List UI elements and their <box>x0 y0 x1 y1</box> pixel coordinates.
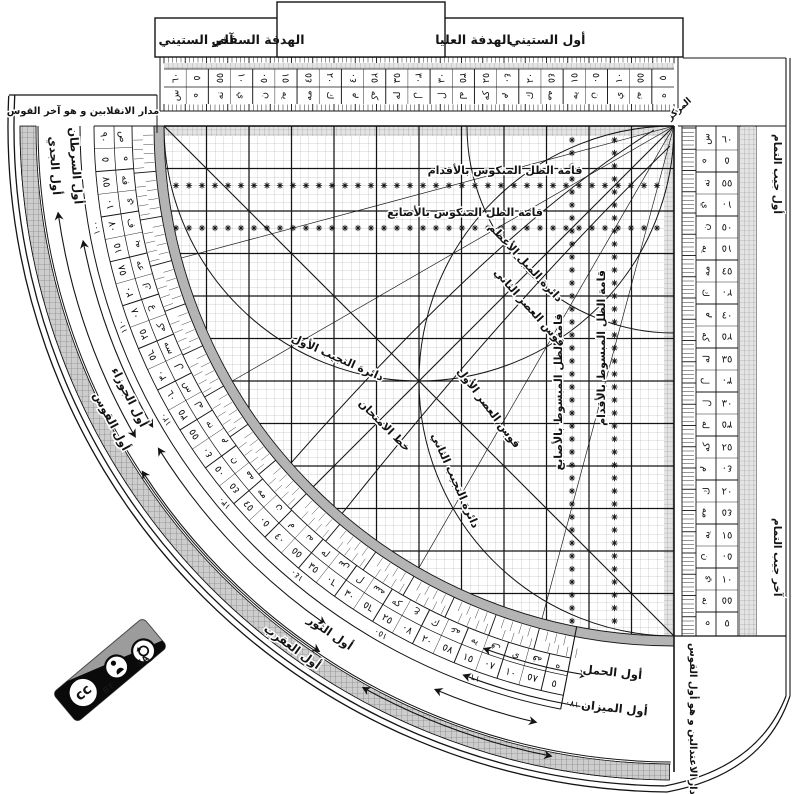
arc-scale-abjad: يه <box>130 239 142 249</box>
sixty-scale-abjad: كه <box>481 90 492 100</box>
sixty-scale-abjad: ن <box>259 92 270 99</box>
arc-scale-abjad: ن <box>228 454 241 466</box>
sixty-scale-abjad: ه <box>658 93 669 98</box>
sine-scale-abjad: ه <box>701 620 712 625</box>
sine-scale-number: ٢٠ <box>722 287 733 298</box>
sine-scale-number: ٢٥ <box>722 331 733 342</box>
sine-scale-abjad: مه <box>700 508 711 518</box>
sixty-scale-number: ٥٥ <box>634 73 645 83</box>
label-solstice-orbit: مدار الانقلابين و هو آخر القوس <box>7 104 159 117</box>
sine-scale-abjad: ن <box>700 554 711 561</box>
label-zodiac-capricorn: أول الجدي <box>45 136 65 196</box>
right-sine-scale: س٦٠ه٥نه٥٥ي١٠ن٥٠يه١٥مه٤٥ك٢٠م٤٠كه٢٥له٣٥ل٣٠… <box>682 126 756 636</box>
sixty-scale-number: ٤٥ <box>303 73 314 83</box>
sine-scale-abjad: له <box>701 355 712 363</box>
arc-scale-abjad: م <box>217 436 229 447</box>
arc-scale-abjad: عه <box>133 259 146 272</box>
label-cosine-last: آخر جيب التمام <box>771 518 784 597</box>
arc-scale-number: ٣٠ <box>155 368 170 382</box>
arc-scale-number: ٣٥ <box>305 561 320 576</box>
sine-scale-abjad: ك <box>700 289 711 297</box>
arc-scale-number: ٢٥ <box>137 327 151 341</box>
arc-scale-number: ٦٠ <box>163 389 178 404</box>
arc-scale-abjad: ه <box>119 156 130 162</box>
arc-scale-abjad: ف <box>125 217 138 229</box>
arc-scale-number: ٩٠ <box>98 132 109 143</box>
arc-scale-abjad: س <box>180 379 195 394</box>
sine-scale-number: ١٠ <box>722 199 733 210</box>
sine-scale-abjad: ل <box>701 399 712 406</box>
arc-scale-abjad: ك <box>141 281 154 292</box>
arc-scale-number: ٦٥ <box>144 348 158 362</box>
arc-scale-number: ٢٠ <box>123 285 137 298</box>
sixty-scale-abjad: مه <box>546 90 557 100</box>
arc-scale-number: ٤٠ <box>200 445 215 460</box>
sixty-scale-number: ٤٠ <box>501 73 512 83</box>
sixty-scale-abjad: مه <box>303 90 314 100</box>
arc-scale-abjad: مه <box>255 486 270 501</box>
sixty-scale-abjad: ل <box>436 92 447 99</box>
arc-scale-abjad: ع <box>411 606 421 619</box>
arc-scale-abjad: ص <box>117 131 128 143</box>
zodiac-arrow <box>142 471 319 651</box>
sixty-scale-abjad: له <box>392 92 403 100</box>
label-lower-sight: الهدفة السفلي <box>211 32 304 47</box>
sine-scale-number: ٥٥ <box>722 595 733 606</box>
sine-scale-abjad: كه <box>701 442 712 452</box>
sine-scale-number: ٣٥ <box>722 355 733 366</box>
arc-scale-abjad: فه <box>119 175 131 186</box>
arc-scale-abjad: م <box>287 519 299 531</box>
sixty-scale-number: ٥ <box>658 75 669 80</box>
label-zodiac-taurus: أول الثور <box>303 611 356 654</box>
arc-scale-number: ١٥ <box>112 242 125 255</box>
sixty-scale-abjad: كه <box>368 91 379 101</box>
arc-scale-abjad: له <box>319 547 332 561</box>
arc-scale-number: ٧٥ <box>115 264 128 277</box>
sine-scale-abjad: يه <box>701 531 712 539</box>
sine-scale-abjad: ن <box>701 223 712 230</box>
arc-scale-abjad: كه <box>390 596 404 611</box>
arc-scale-number: ٥ <box>100 157 111 163</box>
arc-scale-number: ٨٥ <box>526 670 539 683</box>
sine-scale-abjad: مه <box>701 266 712 276</box>
corner-curve-outer <box>667 696 790 792</box>
arc-scale-number: ٥ <box>550 678 558 690</box>
sixty-scale-abjad: نه <box>215 92 226 100</box>
sine-scale-number: ٥٠ <box>722 223 733 234</box>
arc-scale-number: ٤٠ <box>272 531 287 546</box>
arc-scale-number: ٣٥ <box>176 407 191 422</box>
sine-scale-number: ٢٠ <box>722 487 733 498</box>
sixty-scale-abjad: ك <box>324 92 335 100</box>
arc-scale-abjad: ن <box>272 502 285 515</box>
arc-scale-number: ٢٥ <box>379 612 394 627</box>
arc-scale-abjad: عه <box>448 624 462 638</box>
sine-scale-number: ٢٥ <box>722 443 733 454</box>
sine-scale-abjad: يه <box>700 245 711 253</box>
cc-badge[interactable]: cc BY SA <box>53 618 168 724</box>
sixty-scale-number: ٥٠ <box>259 73 270 83</box>
sine-scale-abjad: ه <box>700 159 711 164</box>
sine-quadrant-diagram: ص٩٠ه٥فه٨٥ي١٠ف٨٠يه١٥عه٧٥ك٢٠ع٧٠كه٢٥سه٦٥ل٣٠… <box>0 0 794 794</box>
sixty-scale-number: ٣٠ <box>413 73 424 83</box>
arc-scale-number: ٧٥ <box>441 641 455 655</box>
arc-scale-number: ٥٥ <box>186 427 201 442</box>
top-sixty-scale: ٦٠س٥ه٥٥نه١٠ي٥٠ن١٥يه٤٥مه٢٠ك٤٠م٢٥كه٣٥له٣٠ل… <box>164 57 674 111</box>
label-upper-sight: الهدفة العليا <box>435 32 511 47</box>
arc-scale-number: ٥٠ <box>257 514 272 529</box>
arc-scale-number: ٥٠ <box>212 464 227 479</box>
sixty-scale-abjad: ن <box>590 92 601 99</box>
label-flat-shadow-feet: قامة الظل المبسوط بالأقدام <box>594 270 608 426</box>
sixty-scale-number: ٣٠ <box>436 73 447 83</box>
sixty-scale-abjad: م <box>348 92 359 98</box>
sixty-scale-abjad: ي <box>614 92 625 99</box>
arc-scale-number: ٦٠ <box>324 573 339 588</box>
label-reversed-shadow-feet: قامة الظل المنكوس بالأقدام <box>428 163 583 177</box>
arc-scale-abjad: سه <box>161 340 176 356</box>
sine-scale-number: ٤٥ <box>722 267 733 278</box>
secondary-scale-number: ١٧٠ <box>565 697 580 709</box>
sixty-scale-number: ٢٥ <box>368 73 379 83</box>
arc-scale-number: ٧٠ <box>128 307 142 321</box>
label-center-point: المركز <box>665 96 694 123</box>
sixty-scale-number: ١٥ <box>280 73 291 83</box>
arc-scale-abjad: ي <box>123 197 135 206</box>
sixty-scale-abjad: يه <box>570 91 581 99</box>
sixty-scale-abjad: ه <box>191 93 202 98</box>
label-zodiac-libra: أول الميزان <box>580 697 648 720</box>
sixty-scale-number: ١٥ <box>570 73 581 83</box>
sixty-scale-number: ٣٥ <box>457 73 468 83</box>
arc-scale-number: ٨٠ <box>106 220 119 233</box>
arc-scale-abjad: ل <box>354 573 366 586</box>
arc-scale-abjad: مه <box>242 469 257 484</box>
arc-scale-abjad: نه <box>203 418 216 430</box>
sine-scale-abjad: ك <box>701 487 712 495</box>
sixty-scale-abjad: م <box>501 93 512 99</box>
sixty-scale-abjad: ك <box>525 92 536 100</box>
sixty-scale-number: ١٠ <box>614 73 625 83</box>
sixty-scale-abjad: ي <box>235 92 246 99</box>
sixty-scale-number: ٢٠ <box>324 73 335 83</box>
sixty-scale-number: ٥٥ <box>215 73 226 83</box>
sixty-scale-number: ١٠ <box>235 73 246 83</box>
sine-scale-number: ٥ <box>724 619 729 630</box>
label-zodiac-aries: أول الحمل <box>582 661 643 683</box>
label-cosine-first: أول جيب التمام <box>771 134 785 214</box>
arc-scale-number: ٥٥ <box>290 545 305 560</box>
arc-scale-abjad: ل <box>173 361 186 372</box>
arc-scale-number: ٢٠ <box>419 633 433 648</box>
arc-scale-abjad: ع <box>147 303 159 312</box>
label-first-sixty: أول الستيني <box>509 31 586 47</box>
sixty-scale-number: ٥ <box>191 75 202 80</box>
sixty-scale-abjad: يه <box>280 92 291 100</box>
arc-scale-number: ١٠ <box>104 198 116 210</box>
sine-scale-number: ٥٥ <box>722 179 733 190</box>
arc-scale-number: ٤٥ <box>240 499 255 514</box>
sixty-scale-number: ٣٥ <box>392 73 403 83</box>
sine-scale-number: ١٥ <box>722 243 733 254</box>
sixty-scale-number: ٤٥ <box>546 73 557 83</box>
secondary-scale-number: ١١٠ <box>116 318 130 334</box>
sine-scale-number: ٣٥ <box>722 419 733 430</box>
arc-scale-number: ٤٥ <box>227 480 242 495</box>
label-equinox-orbit: مدار الاعتدالين و هو أول القوس <box>687 643 700 794</box>
sine-scale-number: ١٥ <box>722 531 733 542</box>
arc-scale-number: ٨٠ <box>483 657 497 671</box>
sine-scale-number: ٤٠ <box>722 311 733 322</box>
sine-scale-abjad: له <box>700 421 711 429</box>
arc-scale-number: ٧٠ <box>400 621 415 636</box>
sixty-scale-abjad: نه <box>634 92 645 100</box>
arc-scale-number: ١٥ <box>461 651 475 665</box>
sixty-scale-abjad: ل <box>413 92 424 99</box>
sine-scale-number: ٤٠ <box>722 463 733 474</box>
sine-scale-abjad: نه <box>700 597 711 605</box>
arc-scale-number: ١٠ <box>504 666 517 680</box>
arc-scale-number: ٣٠ <box>341 588 356 603</box>
sine-scale-abjad: س <box>701 133 712 145</box>
sixty-scale-number: ٢٠ <box>525 73 536 83</box>
sine-scale-abjad: ي <box>700 201 711 208</box>
sine-scale-number: ٣٠ <box>722 399 733 410</box>
sine-scale-abjad: م <box>701 312 712 318</box>
sixty-scale-number: ٤٠ <box>348 73 359 83</box>
sine-scale-abjad: ل <box>700 378 711 385</box>
sine-scale-abjad: ي <box>701 575 712 582</box>
sine-scale-number: ٤٥ <box>722 507 733 518</box>
sine-scale-abjad: م <box>700 466 711 472</box>
sixty-scale-abjad: س <box>170 90 181 102</box>
secondary-scale-number: ١٠٠ <box>91 220 103 235</box>
arc-scale-abjad: يه <box>469 634 481 647</box>
sixty-scale-abjad: له <box>457 92 468 100</box>
sine-scale-number: ٦٠ <box>722 135 733 146</box>
arc-scale-abjad: كه <box>155 320 169 333</box>
sixty-scale-number: ٦٠ <box>170 73 181 83</box>
arc-scale-abjad: نه <box>303 532 316 545</box>
sine-scale-number: ٥ <box>724 155 729 166</box>
sine-scale-number: ٣٠ <box>722 375 733 386</box>
sixty-scale-number: ٥٠ <box>590 73 601 83</box>
sine-scale-abjad: نه <box>701 179 712 187</box>
label-zodiac-cancer: أول السرطان <box>65 127 86 205</box>
arc-scale-number: ٦٥ <box>361 599 376 614</box>
sine-scale-abjad: كه <box>700 332 711 342</box>
arc-scale-number: ٨٥ <box>100 176 112 188</box>
arc-scale-abjad: ك <box>429 617 441 630</box>
arc-scale-abjad: له <box>193 399 207 411</box>
sine-scale-number: ١٠ <box>722 575 733 586</box>
sixty-scale-number: ٢٥ <box>481 73 492 83</box>
label-reversed-shadow-digits: قامة الظل المنكوس بالأصابع <box>387 205 543 219</box>
sine-scale-number: ٥٠ <box>722 551 733 562</box>
